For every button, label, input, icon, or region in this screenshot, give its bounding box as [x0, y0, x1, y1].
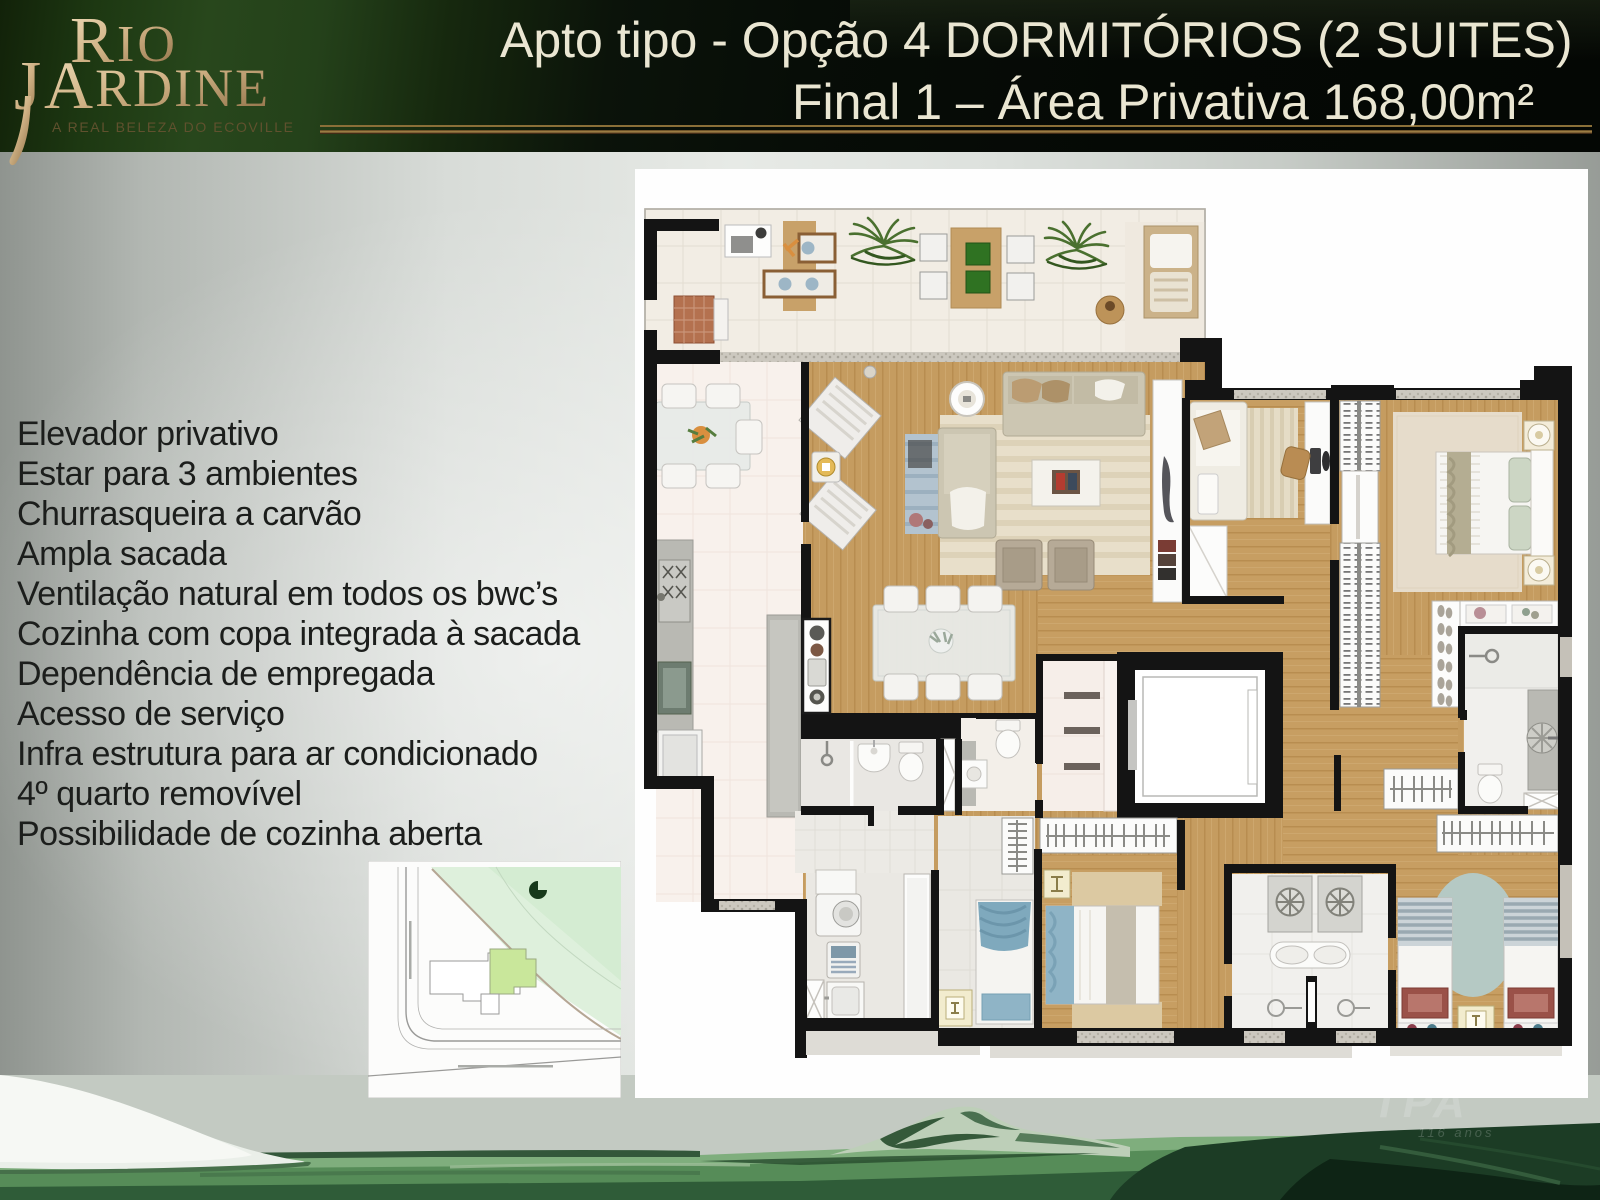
- svg-text:ARDINE: ARDINE: [44, 47, 270, 123]
- svg-text:A REAL BELEZA DO ECOVILLE: A REAL BELEZA DO ECOVILLE: [52, 119, 295, 135]
- svg-text:116 anos: 116 anos: [1418, 1125, 1495, 1140]
- svg-text:TPA: TPA: [1372, 1078, 1469, 1127]
